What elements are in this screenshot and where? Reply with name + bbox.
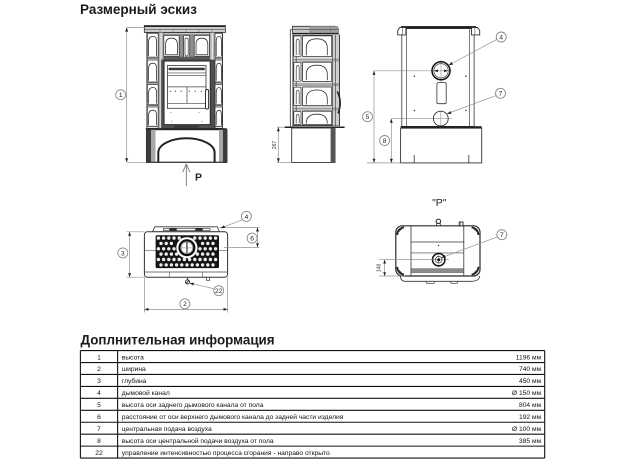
svg-text:Ø 150 мм: Ø 150 мм	[512, 390, 542, 397]
svg-text:5: 5	[97, 402, 101, 409]
svg-text:450 мм: 450 мм	[519, 378, 542, 385]
svg-text:1: 1	[97, 354, 101, 361]
svg-text:22: 22	[215, 288, 223, 295]
svg-text:расстояние от оси верхнего дым: расстояние от оси верхнего дымового кана…	[122, 413, 344, 421]
svg-text:3: 3	[97, 378, 101, 385]
svg-text:7: 7	[499, 91, 503, 98]
svg-text:управление интенсивностью проц: управление интенсивностью процесса сгора…	[122, 450, 330, 457]
svg-text:Доплнительная информация: Доплнительная информация	[81, 332, 275, 347]
svg-text:8: 8	[97, 438, 101, 445]
svg-text:высота оси центральной подачи: высота оси центральной подачи воздуха от…	[122, 437, 274, 445]
svg-text:740 мм: 740 мм	[519, 366, 542, 373]
svg-text:6: 6	[250, 236, 254, 243]
svg-text:267: 267	[272, 141, 278, 150]
svg-text:Ø 100 мм: Ø 100 мм	[512, 426, 542, 433]
svg-text:385 мм: 385 мм	[519, 438, 542, 445]
svg-text:P: P	[195, 171, 202, 183]
svg-text:Размерный эскиз: Размерный эскиз	[80, 2, 197, 17]
svg-text:"P": "P"	[432, 197, 447, 209]
svg-text:804 мм: 804 мм	[519, 402, 542, 409]
svg-text:дымовой канал: дымовой канал	[122, 389, 170, 397]
svg-text:8: 8	[383, 138, 387, 145]
svg-text:высота оси заднего дымового ка: высота оси заднего дымового канала от по…	[122, 402, 264, 409]
svg-text:высота: высота	[122, 354, 144, 361]
svg-text:148: 148	[377, 264, 383, 273]
svg-text:5: 5	[366, 114, 370, 121]
svg-text:1: 1	[119, 92, 123, 99]
svg-text:2: 2	[183, 301, 187, 308]
svg-text:центральная подача воздуха: центральная подача воздуха	[122, 426, 212, 433]
svg-text:22: 22	[95, 450, 103, 457]
svg-text:4: 4	[499, 34, 503, 41]
svg-text:192 мм: 192 мм	[519, 414, 542, 421]
svg-text:7: 7	[97, 426, 101, 433]
svg-text:2: 2	[97, 366, 101, 373]
svg-text:глубина: глубина	[122, 377, 147, 385]
svg-text:4: 4	[97, 390, 101, 397]
svg-text:3: 3	[121, 250, 125, 257]
svg-text:4: 4	[245, 214, 249, 221]
svg-text:ширина: ширина	[122, 366, 146, 373]
svg-text:1196 мм: 1196 мм	[516, 354, 542, 361]
svg-text:7: 7	[500, 232, 504, 239]
svg-text:6: 6	[97, 414, 101, 421]
